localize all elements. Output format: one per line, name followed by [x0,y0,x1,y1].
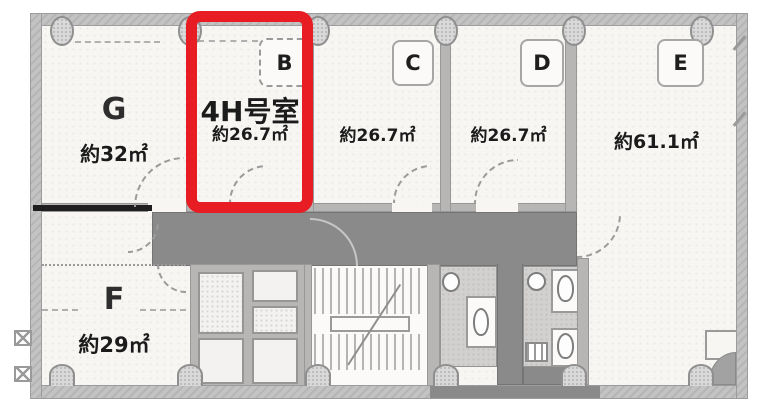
room-d-letter-box: D [520,39,564,87]
room-d-area: 約26.7㎡ [452,121,565,146]
room-c-area: 約26.7㎡ [315,121,440,146]
column-top-1 [50,16,74,46]
column-top-4 [434,16,458,46]
toilet-fixture-a [473,308,489,336]
door-gap-d [476,203,518,212]
column-bottom-3 [305,364,331,386]
g-room-dashed-line [75,41,160,43]
highlight-box-room-b [186,11,313,213]
elevator-shaft-1-lower [198,338,244,384]
door-gap-c [392,203,432,212]
toilet-fixture-b-upper [557,275,574,302]
room-f-area: 約29㎡ [42,329,186,359]
counter-fixture [525,342,548,362]
sink-fixture-a [442,272,460,292]
room-e-letter-box: E [657,39,704,87]
room-c-letter: C [405,51,420,75]
room-d-letter: D [533,51,550,75]
elevator-shaft-2-upper [252,270,298,302]
floor-plan: B C D E G 約32㎡ 4H号室 約26.7㎡ 約26.7㎡ 約26.7㎡… [0,0,760,409]
stair-flight-upper [314,268,425,314]
column-bottom-1 [49,364,75,386]
column-bottom-5 [561,364,587,386]
wall-right [736,13,748,399]
room-e-letter: E [673,51,687,75]
stair-flight-lower [314,334,425,370]
wall-c-d [440,25,451,212]
sink-fixture-b [527,272,546,291]
wall-d-e [565,25,577,212]
staircase [312,266,427,385]
corridor [152,212,577,266]
elevator-shaft-1 [198,272,244,334]
elevator-shaft-2-mid [252,306,298,334]
corridor-branch [497,264,523,385]
bottom-wall-dark-segment [430,386,600,398]
toilet-fixture-b-lower [557,333,574,359]
room-f-letter: F [42,283,186,317]
column-bottom-2 [177,364,203,386]
column-bottom-4 [433,364,459,386]
room-g-letter: G [42,92,186,128]
column-top-5 [562,16,586,46]
room-c-letter-box: C [392,40,434,86]
elevator-shaft-2-lower [252,338,298,384]
room-e-area: 約61.1㎡ [577,127,736,154]
balcony-mark-box-2 [14,366,32,382]
wall-top [30,13,748,26]
column-bottom-6 [688,364,714,386]
room-g-area: 約32㎡ [42,138,186,167]
balcony-mark-box-1 [14,330,32,346]
wall-bottom [30,385,748,399]
